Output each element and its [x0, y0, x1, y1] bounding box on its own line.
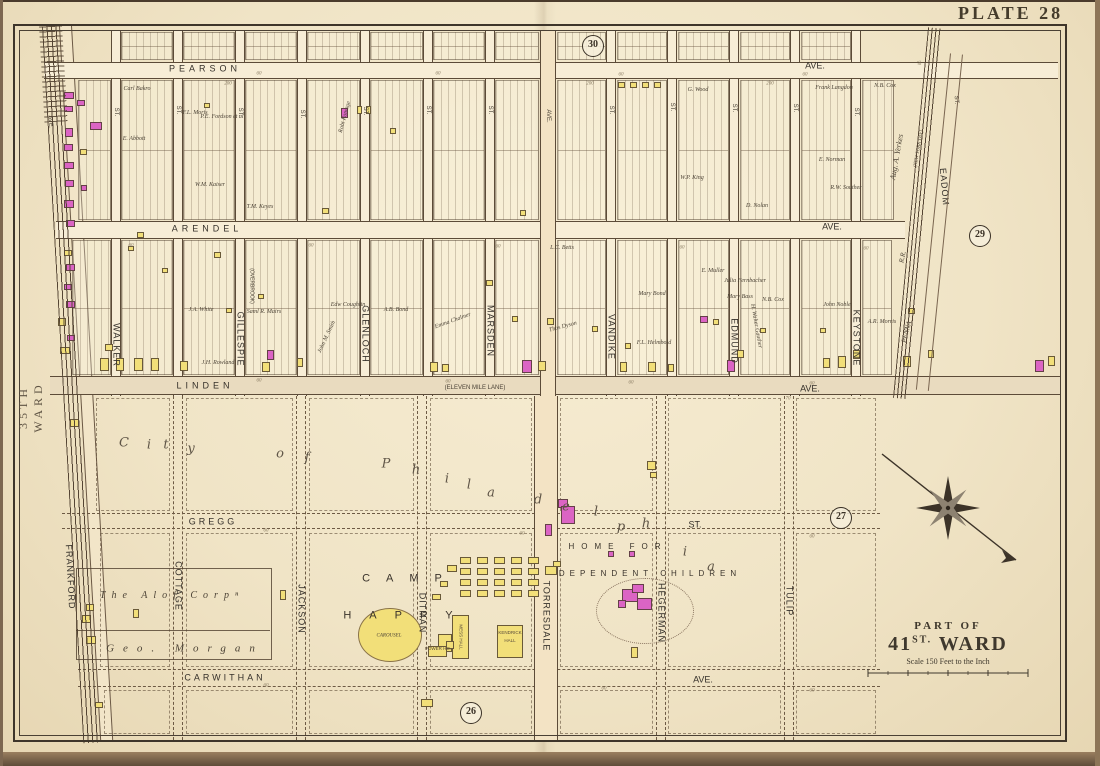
adjacent-ward-label: 35TH WARD [16, 362, 46, 452]
page-edge-top [0, 0, 1100, 2]
scale-text: Scale 150 Feet to the Inch [862, 657, 1034, 666]
title-block: PART OF 41ST. WARD Scale 150 Feet to the… [862, 620, 1034, 685]
atlas-sheet: PEARSONAVE.ARENDELAVE.LINDEN(ELEVEN MILE… [0, 0, 1100, 766]
plate-title: PLATE 28 [958, 3, 1063, 24]
ward-word: WARD [932, 633, 1008, 655]
ward-ordinal: ST. [912, 634, 932, 645]
page-edge-right [1095, 0, 1100, 766]
compass-rose [870, 446, 1030, 574]
title-ward: 41ST. WARD [862, 633, 1034, 656]
scale-bar [863, 666, 1033, 680]
page-edge-bottom [0, 752, 1100, 766]
page-edge-left [0, 0, 3, 766]
title-part-of: PART OF [862, 620, 1034, 632]
ward-number: 41 [888, 633, 912, 655]
